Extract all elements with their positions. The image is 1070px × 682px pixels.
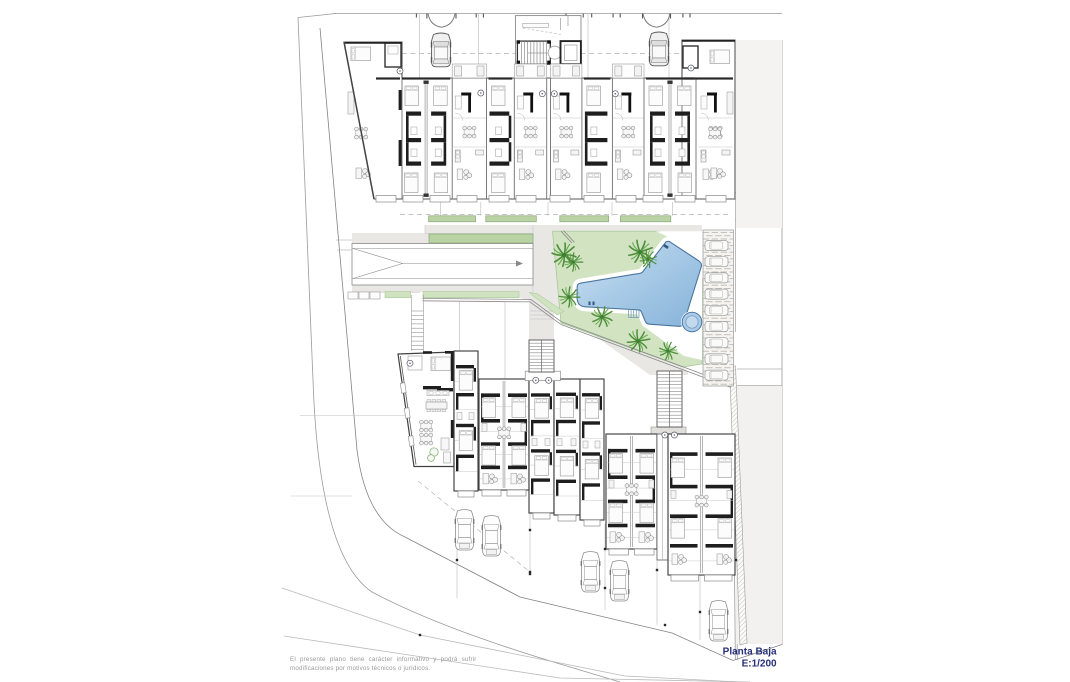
svg-text:El presente plano tiene caráct: El presente plano tiene carácter informa…: [290, 656, 477, 663]
svg-text:Planta Baja: Planta Baja: [723, 647, 777, 658]
svg-text:modificaciones por motivos téc: modificaciones por motivos técnicos o ju…: [290, 665, 430, 672]
svg-text:E:1/200: E:1/200: [742, 659, 777, 670]
